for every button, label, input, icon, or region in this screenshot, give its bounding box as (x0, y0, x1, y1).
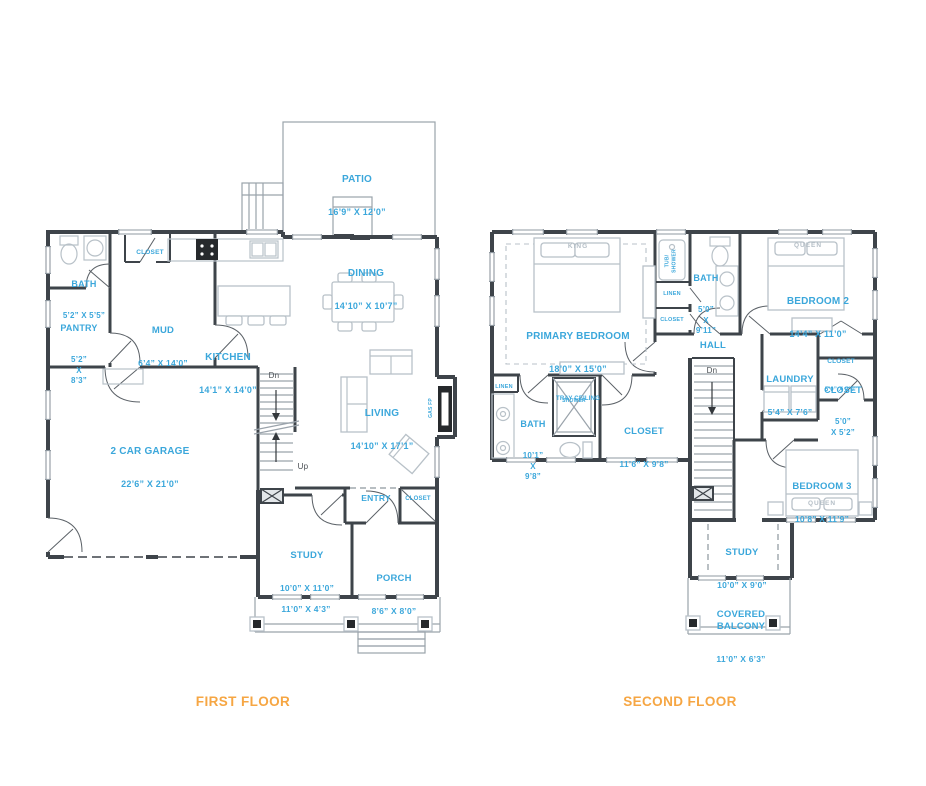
kitchen-island (218, 286, 290, 316)
room-label-closet-bed2: CLOSET 5’0” X 5’2” (824, 364, 862, 459)
room-label-pantry: PANTRY 5’2” X 8’3” (60, 302, 97, 407)
label-queen-bed-2: QUEEN (794, 242, 822, 250)
second-floor-stairs (693, 366, 733, 510)
range-icon (196, 239, 218, 260)
label-shower: SHOWER (562, 398, 586, 405)
room-label-garage: 2 CAR GARAGE 22’6” X 21’0” (110, 424, 189, 511)
label-tub-shower: TUB/ SHOWER (665, 249, 678, 273)
dresser (643, 266, 655, 318)
second-floor-title: SECOND FLOOR (623, 694, 737, 709)
label-queen-bed-3: QUEEN (808, 500, 836, 508)
room-label-laundry: LAUNDRY 5’4” X 7’6” (766, 353, 814, 439)
room-label-study1: STUDY 10’0” X 11’0” (280, 529, 334, 615)
first-floor-stairs (254, 374, 299, 503)
label-linen-hall: LINEN (663, 291, 681, 298)
label-stairs-down-2: Dn (707, 366, 718, 376)
room-label-mud: MUD 6’4” X 14’0” (138, 304, 188, 390)
label-king-bed: KING (568, 243, 588, 251)
room-label-primary-closet: CLOSET 11’6” X 9’8” (619, 405, 668, 491)
label-gas-fireplace: GAS FP (428, 398, 435, 418)
room-label-mud-closet: CLOSET (136, 249, 164, 257)
room-label-living: LIVING 14’10” X 17’1” (351, 386, 414, 473)
first-floor-title: FIRST FLOOR (196, 694, 290, 709)
room-label-dining: DINING 14’10” X 10’7” (335, 246, 398, 333)
vanity (492, 394, 514, 458)
room-label-patio: PATIO 16’9” X 12’0” (328, 152, 386, 239)
room-label-porch: PORCH 8’6” X 8’0” (372, 552, 417, 638)
toilet-icon (560, 443, 580, 458)
label-front-porch-dims: 11’0” X 4’3” (281, 604, 330, 615)
nightstand (859, 502, 872, 515)
room-label-primary-bath: BATH 10’1” X 9’8” (520, 398, 545, 503)
room-label-entry-closet: CLOSET (405, 496, 431, 504)
toilet-icon (710, 237, 730, 246)
room-label-entry: ENTRY (361, 493, 391, 504)
label-linen-bath: LINEN (495, 384, 513, 391)
label-stairs-down-1: Dn (269, 371, 280, 381)
label-closet-hall: CLOSET (660, 317, 684, 324)
nightstand (768, 502, 783, 515)
room-label-kitchen: KITCHEN 14’1” X 14’0” (199, 330, 257, 417)
label-stairs-up-1: Up (298, 462, 309, 472)
room-label-hall: HALL (700, 340, 726, 352)
floor-plan-sheet: PATIO 16’9” X 12’0” BATH 5’2” X 5’5” CLO… (0, 0, 926, 786)
room-label-balcony: COVERED BALCONY 11’0” X 6’3” (716, 588, 765, 686)
